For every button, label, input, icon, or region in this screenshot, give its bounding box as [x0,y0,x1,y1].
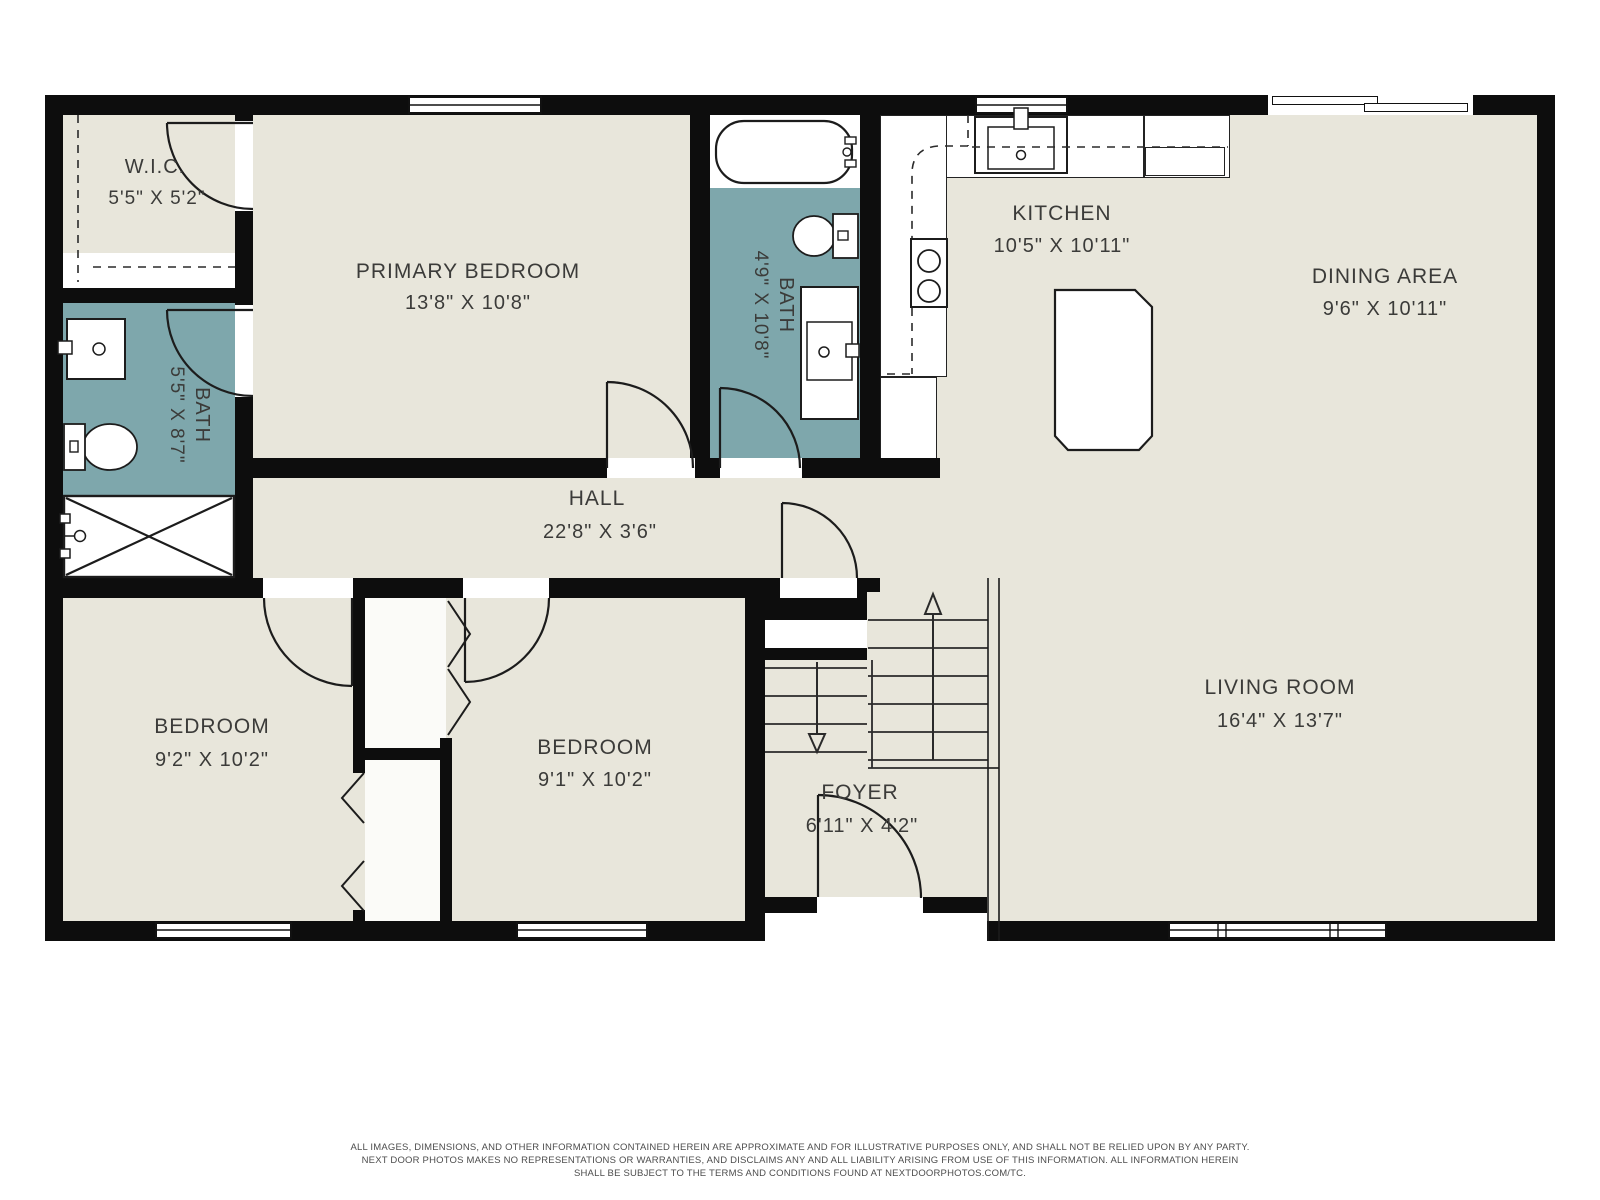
disclaimer-line-2: NEXT DOOR PHOTOS MAKES NO REPRESENTATION… [0,1154,1600,1167]
label-living-room-dims: 16'4" X 13'7" [1217,708,1343,734]
label-hall: HALL [569,486,626,512]
door-stairs [782,503,857,578]
stair-railing [988,578,999,941]
disclaimer-line-1: ALL IMAGES, DIMENSIONS, AND OTHER INFORM… [0,1141,1600,1154]
stairs [765,620,999,768]
label-bedroom-left: BEDROOM [154,714,270,740]
label-bath-primary-name: BATH [189,387,214,443]
label-living-room: LIVING ROOM [1204,675,1355,701]
kitchen-island [1055,290,1152,450]
door-bedroom-left [264,598,352,686]
bifold-closet-upper [448,601,470,735]
door-entry [818,795,921,898]
tub-faucet-a [845,137,856,144]
door-bedroom-middle [465,598,549,682]
label-bath-primary: BATH 5'5" X 8'7" [161,340,217,490]
tub-faucet-icon [843,148,851,156]
plan-linework [0,0,1600,1200]
toilet-bath-hall [793,214,858,258]
sink-drain-icon [819,347,829,357]
label-wic-dims: 5'5" X 5'2" [108,186,205,212]
door-bath-hall [720,388,800,468]
label-bedroom-middle: BEDROOM [537,735,653,761]
label-bath-hall: BATH 4'9" X 10'8" [745,230,801,380]
shower [60,496,234,577]
label-foyer: FOYER [821,780,898,806]
label-foyer-dims: 6'11" X 4'2" [806,813,918,839]
kitchen-faucet-icon [1014,108,1028,129]
label-primary-bedroom-dims: 13'8" X 10'8" [405,290,531,316]
label-wic: W.I.C. [125,154,185,180]
vanity-bath-hall [801,287,859,419]
kitchen-sink [975,108,1067,173]
bifold-doors [342,601,470,911]
label-bedroom-left-dims: 9'2" X 10'2" [155,747,269,773]
label-bath-primary-dims: 5'5" X 8'7" [164,366,189,463]
sink-faucet-icon [58,341,72,354]
label-bedroom-middle-dims: 9'1" X 10'2" [538,767,652,793]
sink-faucet-icon [846,344,859,357]
vanity-bath-primary [58,319,125,379]
shower-head-icon [75,531,86,542]
bifold-closet-lower [342,773,364,911]
label-kitchen: KITCHEN [1012,201,1111,227]
stairs-down-arrow-icon [809,662,825,752]
label-dining-area-dims: 9'6" X 10'11" [1323,296,1448,322]
tub-faucet-b [845,160,856,167]
label-bath-hall-name: BATH [773,277,798,333]
label-dining-area: DINING AREA [1312,264,1458,290]
kitchen-stove [911,239,947,307]
door-primary-bedroom [607,382,693,468]
label-hall-dims: 22'8" X 3'6" [543,519,657,545]
bathtub [716,121,856,183]
burner-icon [918,250,940,272]
burner-icon [918,280,940,302]
sink-drain-icon [1017,151,1026,160]
toilet-bath-primary [64,424,137,470]
label-bath-hall-dims: 4'9" X 10'8" [748,251,773,360]
label-kitchen-dims: 10'5" X 10'11" [994,233,1131,259]
stairs-up-arrow-icon [925,594,941,760]
floor-plan-page: W.I.C. 5'5" X 5'2" PRIMARY BEDROOM 13'8"… [0,0,1600,1200]
stairs-up-treads [868,620,988,760]
sink-drain-icon [93,343,105,355]
disclaimer-line-3: SHALL BE SUBJECT TO THE TERMS AND CONDIT… [0,1167,1600,1180]
shower-valve-bottom [60,549,70,558]
shower-valve-top [60,514,70,523]
label-primary-bedroom: PRIMARY BEDROOM [356,259,580,285]
